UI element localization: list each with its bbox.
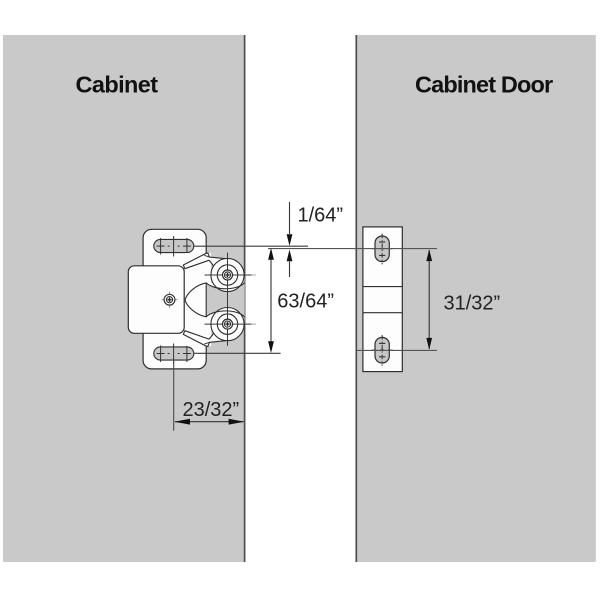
svg-text:1/64”: 1/64” (298, 205, 344, 227)
svg-text:Cabinet Door: Cabinet Door (415, 72, 553, 98)
svg-text:23/32”: 23/32” (183, 399, 240, 421)
svg-text:Cabinet: Cabinet (76, 72, 159, 98)
svg-text:63/64”: 63/64” (277, 291, 334, 313)
svg-text:31/32”: 31/32” (444, 293, 501, 315)
